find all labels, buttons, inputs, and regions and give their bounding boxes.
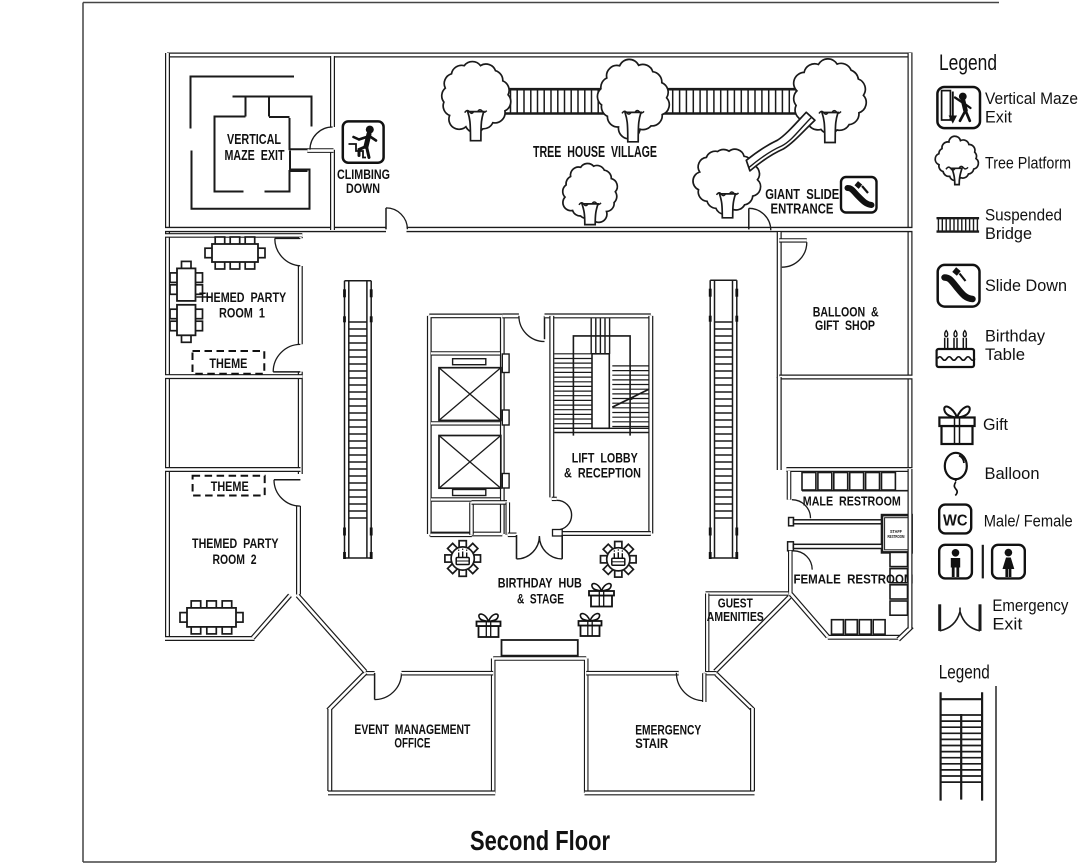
svg-text:STAIR: STAIR — [635, 736, 668, 751]
svg-text:GIFT SHOP: GIFT SHOP — [815, 317, 875, 333]
svg-text:MAZE EXIT: MAZE EXIT — [225, 147, 285, 164]
svg-text:Slide Down: Slide Down — [985, 277, 1067, 295]
svg-text:Gift: Gift — [983, 416, 1008, 434]
svg-text:OFFICE: OFFICE — [394, 736, 430, 751]
svg-text:Vertical Maze: Vertical Maze — [985, 90, 1078, 108]
svg-text:Suspended: Suspended — [985, 207, 1062, 225]
svg-text:ENTRANCE: ENTRANCE — [771, 202, 834, 218]
svg-text:Legend: Legend — [939, 50, 997, 75]
svg-text:Legend: Legend — [939, 663, 990, 684]
svg-text:ROOM 2: ROOM 2 — [213, 552, 257, 567]
svg-text:& RECEPTION: & RECEPTION — [564, 465, 641, 481]
svg-text:Second Floor: Second Floor — [470, 825, 610, 856]
svg-text:THEMED PARTY: THEMED PARTY — [192, 536, 279, 551]
svg-text:Tree Platform: Tree Platform — [985, 155, 1071, 173]
svg-text:EMERGENCY: EMERGENCY — [635, 722, 701, 737]
svg-text:TREE HOUSE VILLAGE: TREE HOUSE VILLAGE — [533, 144, 657, 161]
svg-text:THEMED PARTY: THEMED PARTY — [199, 290, 286, 305]
svg-text:& STAGE: & STAGE — [517, 590, 564, 606]
svg-text:THEME: THEME — [211, 479, 249, 494]
svg-text:VERTICAL: VERTICAL — [227, 131, 281, 148]
svg-text:Exit: Exit — [992, 616, 1022, 634]
svg-text:THEME: THEME — [209, 356, 247, 371]
svg-text:Table: Table — [985, 346, 1025, 364]
svg-text:AMENITIES: AMENITIES — [707, 609, 764, 624]
svg-text:Male/ Female: Male/ Female — [984, 513, 1073, 531]
svg-text:WC: WC — [943, 513, 968, 530]
svg-text:BIRTHDAY HUB: BIRTHDAY HUB — [498, 575, 582, 591]
svg-text:Emergency: Emergency — [992, 597, 1069, 615]
svg-text:RESTROOM: RESTROOM — [888, 534, 905, 539]
svg-text:ROOM 1: ROOM 1 — [219, 306, 265, 321]
svg-text:Exit: Exit — [985, 109, 1012, 127]
svg-text:LIFT LOBBY: LIFT LOBBY — [572, 450, 639, 466]
svg-text:MALE RESTROOM: MALE RESTROOM — [803, 494, 901, 509]
svg-text:Bridge: Bridge — [985, 225, 1032, 243]
svg-text:DOWN: DOWN — [346, 181, 380, 196]
svg-text:Balloon: Balloon — [985, 465, 1040, 483]
svg-text:Birthday: Birthday — [985, 328, 1046, 346]
svg-text:FEMALE RESTROOM: FEMALE RESTROOM — [794, 572, 914, 587]
svg-text:CLIMBING: CLIMBING — [337, 167, 390, 182]
